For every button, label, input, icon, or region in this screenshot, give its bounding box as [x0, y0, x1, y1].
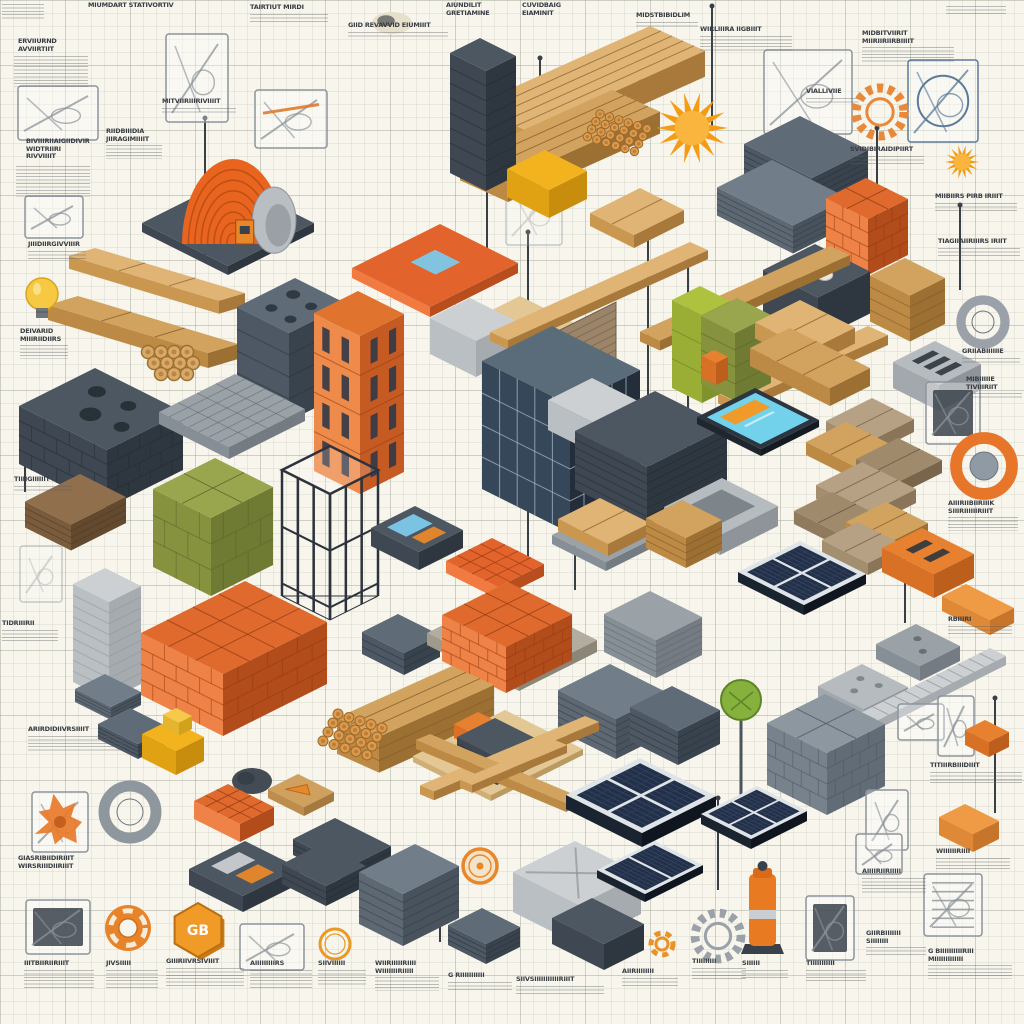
annotation	[16, 164, 90, 197]
annotation-scribble	[162, 108, 236, 115]
annotation-header: TIIIIGIIIIIIT	[14, 476, 72, 484]
annotation: RBIIIRI	[948, 616, 1012, 636]
annotation-header: MIIRIIRIIRBIIIIT	[862, 38, 954, 46]
annotation: G RIIIIIIIIIII	[448, 972, 512, 992]
annotation-header: TIIIIIIIIIII	[806, 960, 866, 968]
annotation: TIIIIIIIIIII	[806, 960, 866, 983]
annotation-layer: MIUMDART STATIVORTIVTAIRTIUT MIRDIGIID R…	[0, 0, 1024, 1024]
annotation-header: MIIBIIRS PIRB IRIIIT	[935, 193, 1017, 201]
annotation-header: VIALLIVIIE	[806, 88, 858, 96]
annotation: GIIRBIIIIIIISIIIIIIII	[866, 930, 926, 957]
annotation-header: MIIIIIIIIIIIII	[928, 956, 1012, 964]
annotation-scribble	[622, 978, 678, 988]
annotation: WIIIIIIRIIII	[936, 848, 1010, 871]
annotation-scribble	[806, 98, 858, 105]
annotation: JIIIDIIRGIVVIIIR	[28, 241, 86, 261]
annotation-header: TITIIIRBIIIDIIIT	[930, 762, 1022, 770]
annotation-header: RBIIIRI	[948, 616, 1012, 624]
annotation: WIIRIIIIIRIIIIWIIIIIIIRIIIII	[375, 960, 439, 991]
annotation-header: WIDTRIIRI RIVVIIIIT	[26, 146, 90, 161]
annotation-header: WIRSRIIIDIIRIIIT	[18, 863, 130, 871]
annotation-scribble	[962, 358, 1020, 365]
annotation-scribble	[106, 970, 158, 990]
annotation-scribble	[16, 166, 90, 197]
annotation: AIIIIRIIRIIIII	[862, 868, 926, 895]
annotation-scribble	[948, 517, 1018, 531]
annotation-scribble	[862, 47, 954, 64]
annotation-scribble	[966, 393, 1022, 400]
annotation-scribble	[250, 970, 312, 990]
annotation-scribble	[2, 4, 44, 21]
annotation-header: SIIIIII	[742, 960, 788, 968]
construction-materials-illustration: GB MIUMDART STATIVORTIVTAIRTIUT MIRDIGII…	[0, 0, 1024, 1024]
annotation-scribble	[866, 947, 926, 957]
annotation-header: TIIIIIIIII	[692, 958, 746, 966]
annotation: SVIDIBIRAIDIPIIRT	[850, 146, 924, 166]
annotation-scribble	[938, 248, 1020, 258]
annotation-header: JIIIDIIRGIVVIIIR	[28, 241, 86, 249]
annotation-scribble	[806, 970, 866, 984]
annotation-header: AIUNDILIT GRETIAMINE	[446, 2, 518, 17]
annotation: SIIVSIIIIIIIIIIIRIIIT	[516, 976, 604, 996]
annotation-scribble	[946, 6, 1006, 16]
annotation-scribble	[28, 736, 124, 753]
annotation-header: SIIVSIIIIIIIIIIIRIIIT	[516, 976, 604, 984]
annotation: MIUMDART STATIVORTIV	[88, 2, 176, 10]
annotation-scribble	[24, 970, 94, 990]
annotation-scribble	[348, 32, 448, 39]
annotation: MITVIIRIIIRIVIIIIT	[162, 98, 236, 114]
annotation-header: TIAGIIAIIRIIIRS IRIIT	[938, 238, 1020, 246]
annotation: AIIIIIIIIIRS	[250, 960, 312, 990]
annotation: CUVIDBAIG EIAMINIT	[522, 2, 592, 17]
annotation: GIIIRIIVRSIVIIIT	[166, 958, 244, 988]
annotation-header: MITVIIRIIIRIVIIIIT	[162, 98, 236, 106]
annotation: TAIRTIUT MIRDI	[250, 4, 328, 24]
annotation	[14, 54, 88, 87]
annotation: G BIIIIIIIIIIRIIIMIIIIIIIIIIIII	[928, 948, 1012, 979]
annotation-header: MIDSTBIBIDLIM	[636, 12, 698, 20]
annotation-scribble	[14, 486, 72, 493]
annotation-header: GRIIABIIIIIIE	[962, 348, 1020, 356]
annotation: TIDRIIIRII	[2, 620, 58, 643]
annotation: SIIVIIIIII	[318, 960, 366, 987]
annotation-scribble	[448, 982, 512, 992]
annotation: ERVIIURND AVVIIRTIIT	[18, 38, 88, 53]
annotation-scribble	[948, 626, 1012, 636]
annotation: JIVSIIIII	[106, 960, 158, 990]
annotation-header: JIIRAGIMIIIIT	[106, 136, 162, 144]
annotation: GIID REVAVVID EIUMIIIT	[348, 22, 448, 38]
annotation: TIIIIGIIIIIIT	[14, 476, 72, 492]
annotation-scribble	[106, 145, 162, 159]
annotation-header: SVIDIBIRAIDIPIIRT	[850, 146, 924, 154]
annotation-header: TIVIIIRIIT	[966, 384, 1022, 392]
annotation	[2, 2, 44, 21]
annotation: SIIIIII	[742, 960, 788, 980]
annotation-header: IIITBIIRIIRIIIT	[24, 960, 94, 968]
annotation: TIIIIIIIII	[692, 958, 746, 981]
annotation: GIASRIBIIDIRIIITWIRSRIIIDIIRIIIT	[18, 855, 130, 870]
annotation-scribble	[28, 251, 86, 261]
annotation-scribble	[862, 878, 926, 895]
annotation-scribble	[636, 22, 698, 29]
annotation: RIIDBIIIDIAJIIRAGIMIIIIT	[106, 128, 162, 159]
annotation: AIIRIIIIIIII	[622, 968, 678, 988]
annotation-scribble	[20, 345, 68, 359]
annotation-scribble	[2, 630, 58, 644]
annotation-scribble	[250, 14, 328, 24]
annotation-header: TIDRIIIRII	[2, 620, 58, 628]
annotation-header: SIIIIIIII	[866, 938, 926, 946]
annotation: MIDBITVIIRITMIIRIIRIIRBIIIIT	[862, 30, 954, 64]
annotation	[946, 4, 1006, 16]
annotation: ARIRDIDIIVRSIIIIT	[28, 726, 124, 753]
annotation-header: MIIIRIIDIIRS	[20, 336, 68, 344]
annotation-scribble	[700, 36, 792, 53]
annotation: TIAGIIAIIRIIIRS IRIIT	[938, 238, 1020, 258]
annotation: WIRLIIIRA IIGBIIIT	[700, 26, 792, 53]
annotation-header: SIIVIIIIII	[318, 960, 366, 968]
annotation-scribble	[318, 970, 366, 987]
annotation: MIBIIIIIETIVIIIRIIT	[966, 376, 1022, 400]
annotation-header: WIIIIIIIRIIIII	[375, 968, 439, 976]
annotation-header: ARIRDIDIIVRSIIIIT	[28, 726, 124, 734]
annotation-scribble	[935, 203, 1017, 213]
annotation-header: G RIIIIIIIIIII	[448, 972, 512, 980]
annotation-header: ERVIIURND AVVIIRTIIT	[18, 38, 88, 53]
annotation: BIVIIIRIIAIGIIDIVIRWIDTRIIRI RIVVIIIIT	[26, 138, 90, 161]
annotation-header: JIVSIIIII	[106, 960, 158, 968]
annotation-header: MIUMDART STATIVORTIV	[88, 2, 176, 10]
annotation: IIITBIIRIIRIIIT	[24, 960, 94, 990]
annotation: GRIIABIIIIIIE	[962, 348, 1020, 364]
annotation-header: AIIRIIIIIIII	[622, 968, 678, 976]
annotation-header: AIIIIRIIRIIIII	[862, 868, 926, 876]
annotation-scribble	[928, 965, 1012, 979]
annotation-scribble	[14, 56, 88, 87]
annotation-header: SIIIRIIIIIIRIIIT	[948, 508, 1018, 516]
annotation-scribble	[850, 156, 924, 166]
annotation-header: WIRLIIIRA IIGBIIIT	[700, 26, 792, 34]
annotation: AIUNDILIT GRETIAMINE	[446, 2, 518, 17]
annotation: DEIVARIDMIIIRIIDIIRS	[20, 328, 68, 359]
annotation: MIDSTBIBIDLIM	[636, 12, 698, 28]
annotation: AIIIRIIBIIRIIIKSIIIRIIIIIIRIIIT	[948, 500, 1018, 531]
annotation-header: TAIRTIUT MIRDI	[250, 4, 328, 12]
annotation-header: GIID REVAVVID EIUMIIIT	[348, 22, 448, 30]
annotation: VIALLIVIIE	[806, 88, 858, 104]
annotation-header: AIIIIIIIIIRS	[250, 960, 312, 968]
annotation: TITIIIRBIIIDIIIT	[930, 762, 1022, 785]
annotation-scribble	[516, 986, 604, 996]
annotation-header: WIIIIIIRIIII	[936, 848, 1010, 856]
annotation-scribble	[692, 968, 746, 982]
annotation-header: GIIIRIIVRSIVIIIT	[166, 958, 244, 966]
annotation-scribble	[742, 970, 788, 980]
annotation: MIIBIIRS PIRB IRIIIT	[935, 193, 1017, 213]
annotation-scribble	[936, 858, 1010, 872]
annotation-header: CUVIDBAIG EIAMINIT	[522, 2, 592, 17]
annotation-scribble	[375, 977, 439, 991]
annotation-scribble	[166, 968, 244, 988]
annotation-scribble	[930, 772, 1022, 786]
